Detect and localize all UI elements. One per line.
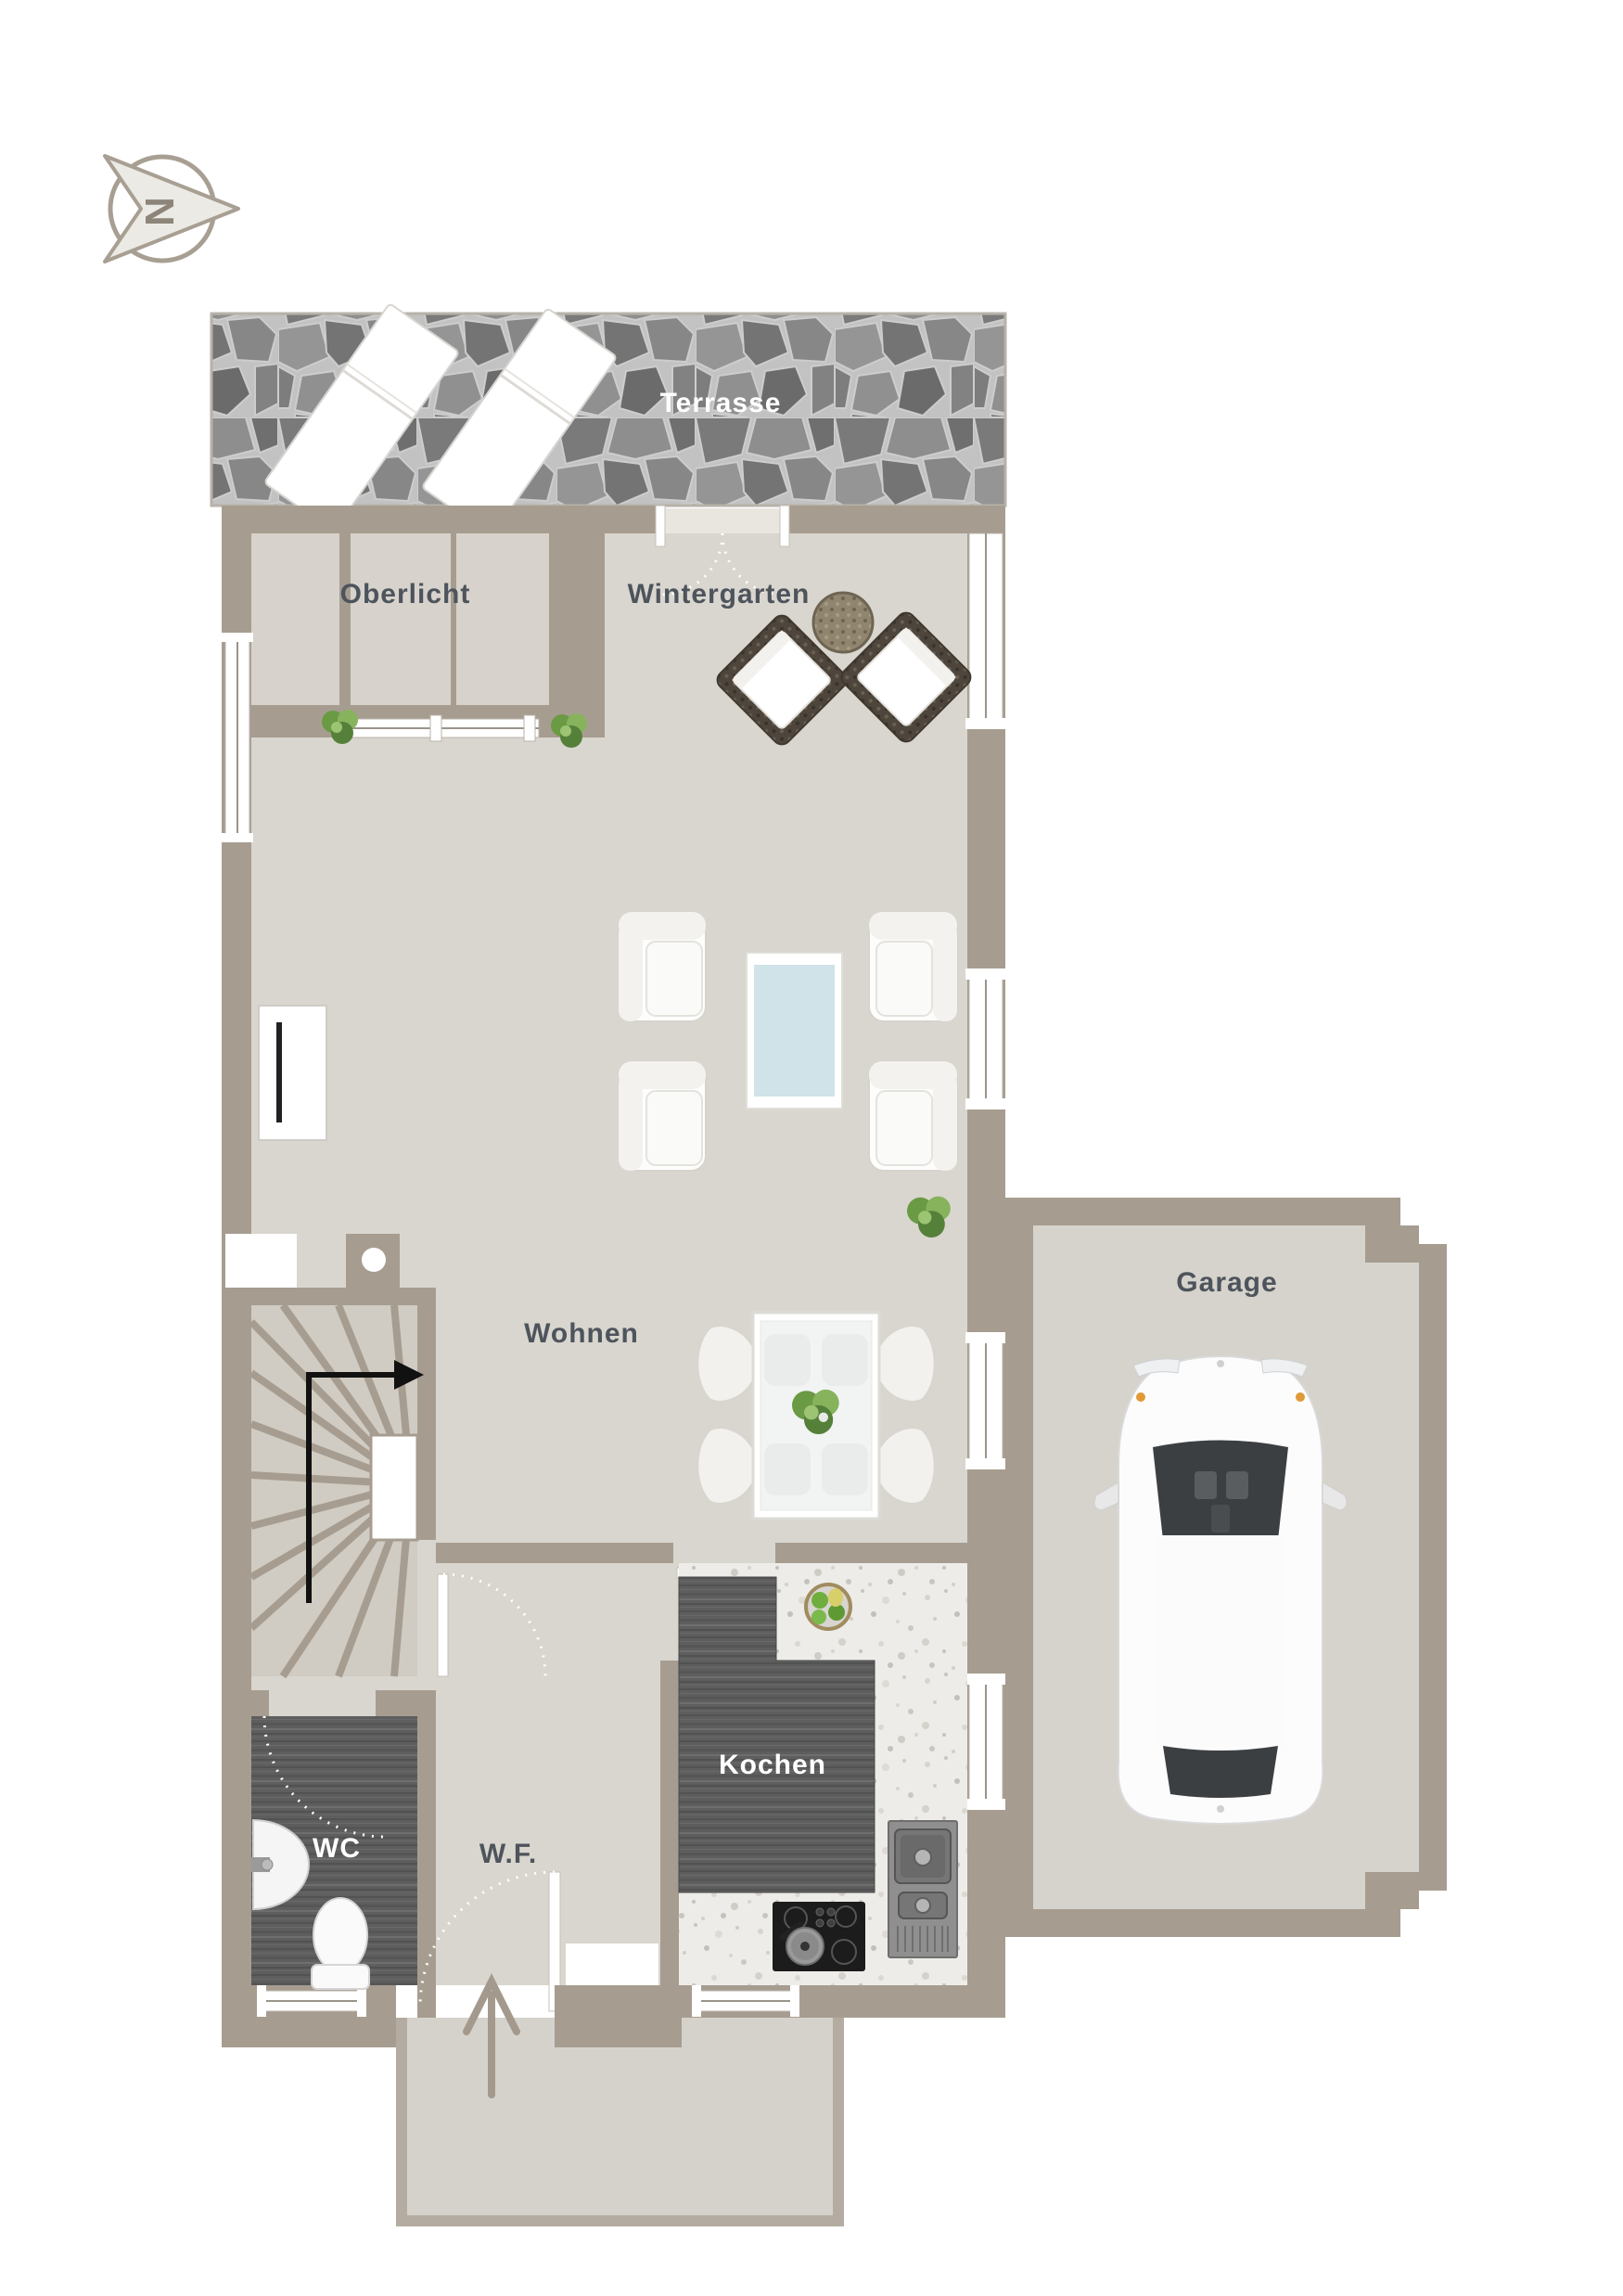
oberlicht-room: Oberlicht xyxy=(222,506,605,741)
window-east-living xyxy=(965,968,1006,1110)
wall-stair-right xyxy=(417,1288,436,1540)
kochen-label: Kochen xyxy=(719,1750,826,1780)
porch-floor xyxy=(396,2018,844,2226)
wall-north xyxy=(222,506,661,533)
wall-wc-right xyxy=(417,1690,436,2018)
floorplan-drawing: N Terrasse Oberlicht xyxy=(0,0,1623,2296)
entry-door-recess xyxy=(566,1943,658,1985)
wintergarten-label: Wintergarten xyxy=(628,579,811,609)
dining-chair-icon xyxy=(879,1326,935,1402)
compass-north-letter: N xyxy=(136,197,182,226)
sideboard xyxy=(259,1006,326,1140)
cooktop-icon xyxy=(773,1902,865,1971)
wall-living-kitchen xyxy=(436,1543,673,1563)
wall-living-kitchen xyxy=(775,1543,967,1563)
car-icon xyxy=(1094,1356,1347,1824)
garage-inner-step xyxy=(1365,1225,1419,1263)
garage-inner-step xyxy=(1365,1872,1419,1909)
wc-room: WC xyxy=(251,1716,417,1989)
toilet-icon xyxy=(312,1898,369,1989)
wall-wc-top xyxy=(222,1690,269,1716)
door-jamb xyxy=(656,506,665,546)
oberlicht-window xyxy=(337,715,539,741)
wall-kitchen-west xyxy=(660,1661,679,1985)
garage-room: Garage xyxy=(1005,1198,1447,1937)
coffee-table xyxy=(747,953,842,1109)
floorplan-canvas: N Terrasse Oberlicht xyxy=(0,0,1623,2296)
terrasse-area: Terrasse xyxy=(211,303,1005,536)
skylight-panel xyxy=(351,533,451,705)
entry-stub-wall xyxy=(555,1985,682,2047)
car-rear-window xyxy=(1163,1746,1278,1798)
window-east-dining xyxy=(965,1332,1006,1469)
terrace-door-opening xyxy=(661,508,784,533)
wohnen-label: Wohnen xyxy=(524,1318,639,1349)
round-table-icon xyxy=(813,593,873,652)
wc-label: WC xyxy=(313,1833,361,1864)
fruit-bowl-icon xyxy=(806,1584,850,1629)
armchair-icon xyxy=(619,912,706,1021)
car-roof xyxy=(1157,1535,1284,1747)
chimney xyxy=(346,1234,400,1288)
dining-chair-icon xyxy=(697,1326,753,1402)
dining-chair-icon xyxy=(697,1428,753,1504)
garage-label: Garage xyxy=(1176,1267,1277,1298)
window-west xyxy=(222,633,253,842)
kitchen-sink-icon xyxy=(888,1821,957,1957)
compass-icon: N xyxy=(105,156,238,262)
window-east-wintergarten xyxy=(965,533,1006,729)
dining-chair-icon xyxy=(879,1428,935,1504)
skylight-panel xyxy=(456,533,549,705)
skylight-panel xyxy=(247,533,339,705)
armchair-icon xyxy=(619,1061,706,1171)
kitchen: Kochen xyxy=(679,1563,967,1985)
terrasse-label: Terrasse xyxy=(660,388,782,418)
wf-label: W.F. xyxy=(479,1839,537,1869)
oberlicht-label: Oberlicht xyxy=(340,579,471,609)
stair-landing xyxy=(371,1435,417,1540)
armchair-icon xyxy=(869,912,957,1021)
west-niche xyxy=(225,1234,297,1288)
armchair-icon xyxy=(869,1061,957,1171)
wall-stair-top xyxy=(244,1288,419,1305)
door-jamb xyxy=(780,506,789,546)
window-east-kitchen xyxy=(965,1674,1006,1810)
